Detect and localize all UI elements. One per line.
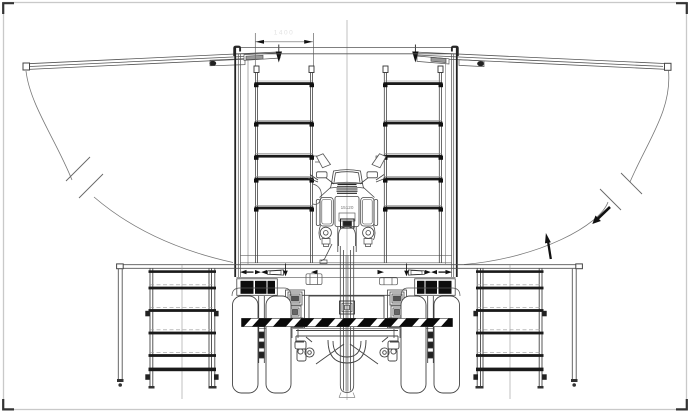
svg-text:1400: 1400 [274,30,294,37]
svg-text:15120: 15120 [341,205,354,210]
